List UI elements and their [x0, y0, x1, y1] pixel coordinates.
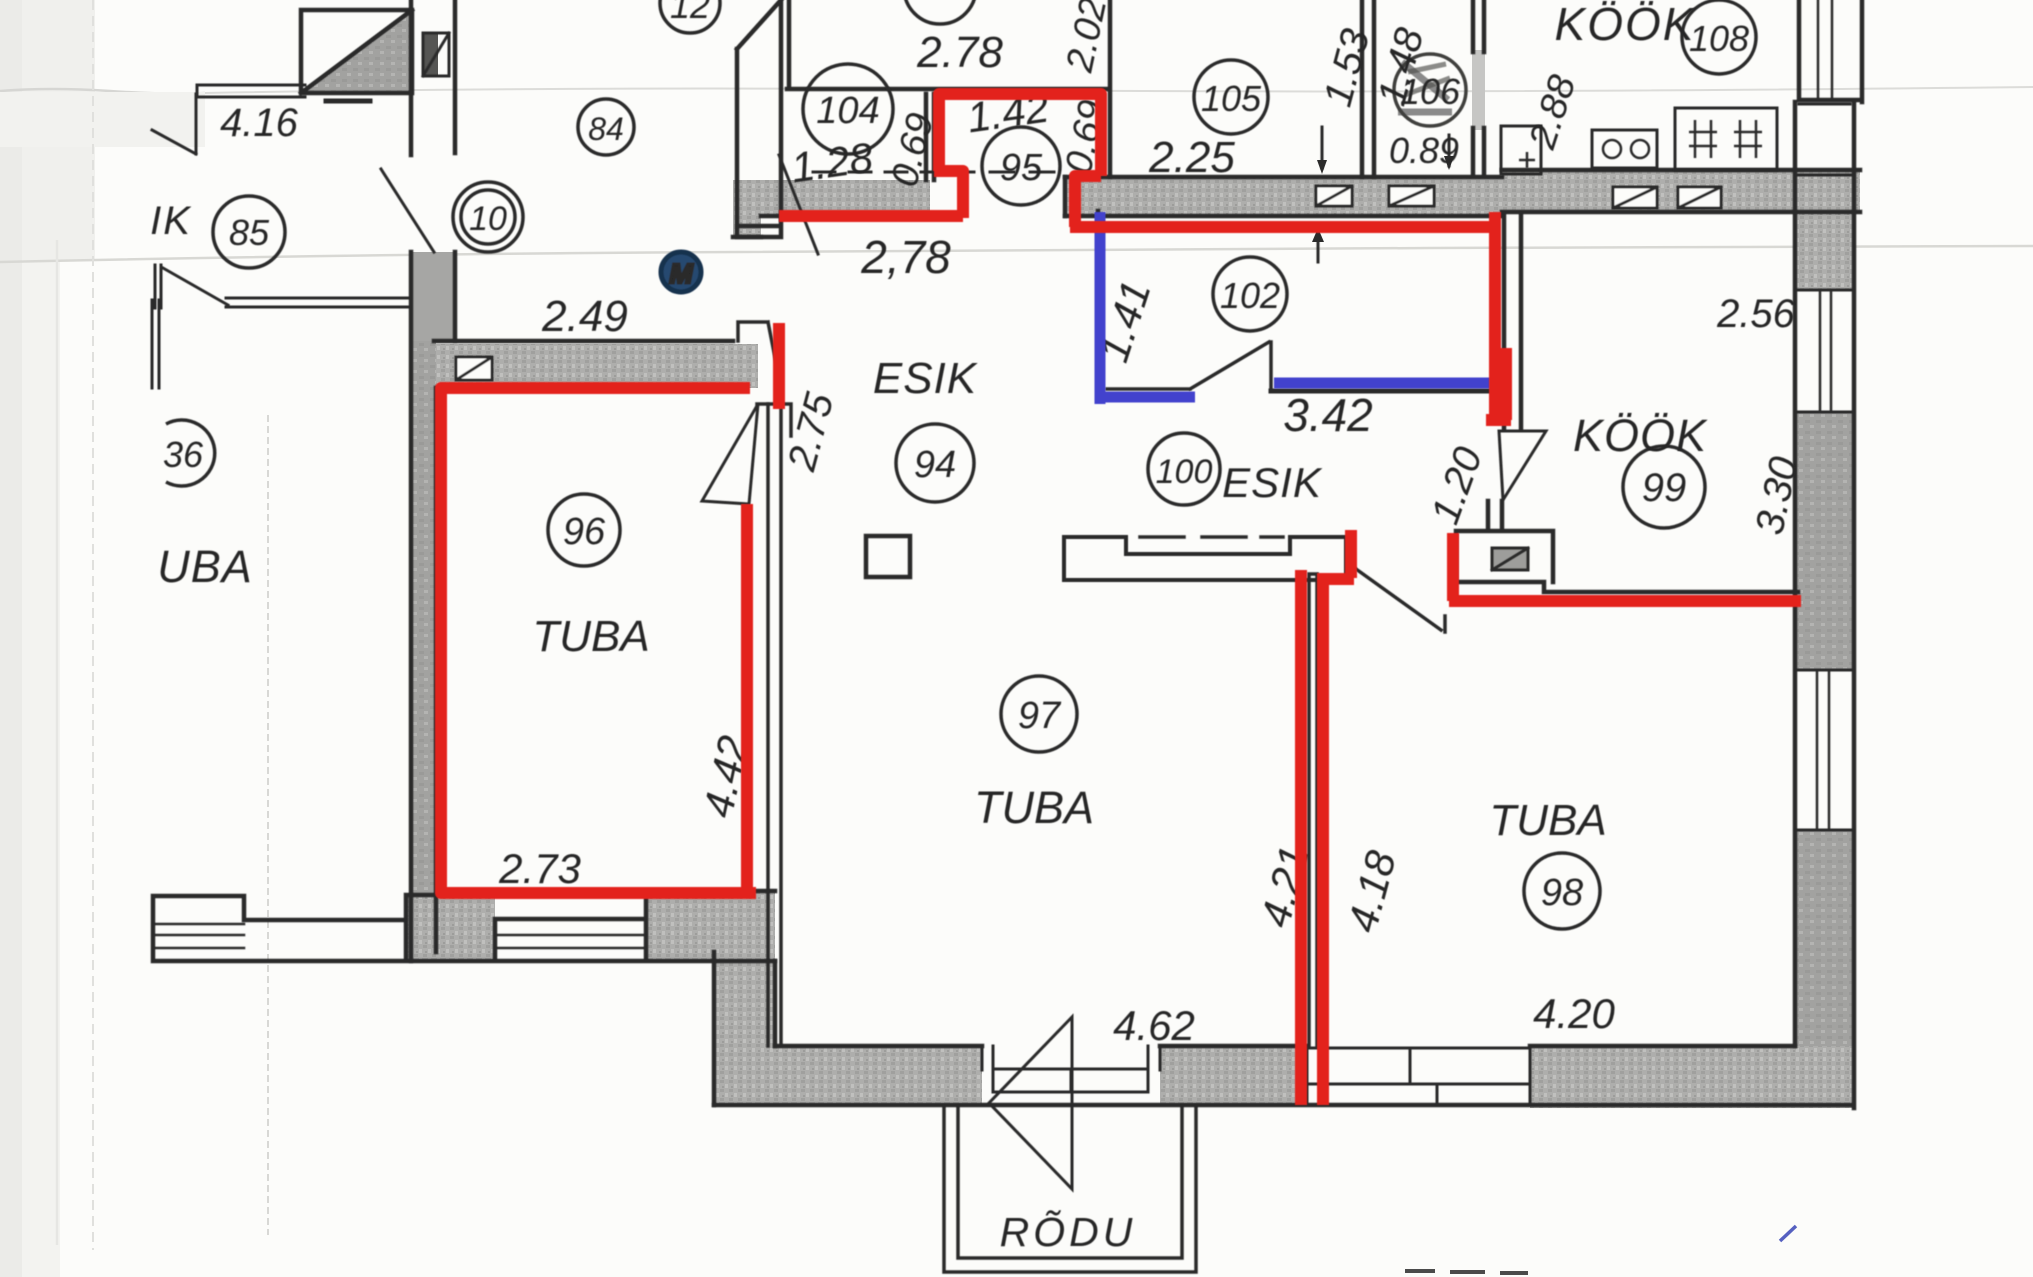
svg-text:2.25: 2.25 [1148, 133, 1235, 182]
svg-text:2.56: 2.56 [1716, 292, 1796, 336]
svg-text:97: 97 [1018, 695, 1062, 737]
svg-text:108: 108 [1689, 18, 1749, 59]
svg-text:2.73: 2.73 [498, 845, 581, 892]
svg-text:TUBA: TUBA [974, 782, 1094, 833]
svg-text:98: 98 [1541, 872, 1583, 914]
svg-text:84: 84 [588, 111, 624, 147]
svg-text:96: 96 [563, 511, 606, 553]
svg-text:UBA: UBA [157, 541, 253, 592]
svg-text:102: 102 [1220, 275, 1280, 316]
svg-text:0.89: 0.89 [1389, 130, 1459, 171]
svg-text:10: 10 [469, 200, 507, 238]
svg-text:99: 99 [1642, 466, 1687, 510]
svg-text:12: 12 [670, 0, 710, 26]
svg-text:ESIK: ESIK [873, 354, 978, 403]
svg-text:36: 36 [163, 434, 204, 475]
svg-text:100: 100 [1156, 453, 1213, 491]
svg-text:4.16: 4.16 [220, 101, 299, 145]
svg-text:104: 104 [816, 90, 879, 132]
svg-text:M: M [669, 258, 693, 289]
svg-text:IK: IK [150, 199, 192, 243]
svg-text:ESIK: ESIK [1222, 459, 1323, 506]
svg-text:KÖÖK: KÖÖK [1573, 410, 1708, 461]
svg-text:105: 105 [1201, 78, 1262, 119]
svg-text:TUBA: TUBA [532, 612, 649, 661]
svg-text:4.20: 4.20 [1533, 990, 1615, 1037]
svg-text:RÕDU: RÕDU [1000, 1209, 1137, 1255]
svg-text:95: 95 [1000, 147, 1043, 189]
svg-text:KÖÖK: KÖÖK [1555, 0, 1696, 50]
svg-text:2.78: 2.78 [916, 28, 1003, 77]
svg-text:TUBA: TUBA [1489, 796, 1606, 845]
svg-text:2,78: 2,78 [860, 231, 951, 283]
svg-text:85: 85 [229, 212, 270, 253]
svg-text:2.49: 2.49 [541, 292, 628, 341]
svg-text:94: 94 [914, 444, 956, 486]
svg-text:3.42: 3.42 [1283, 389, 1373, 441]
svg-text:4.62: 4.62 [1113, 1002, 1195, 1049]
